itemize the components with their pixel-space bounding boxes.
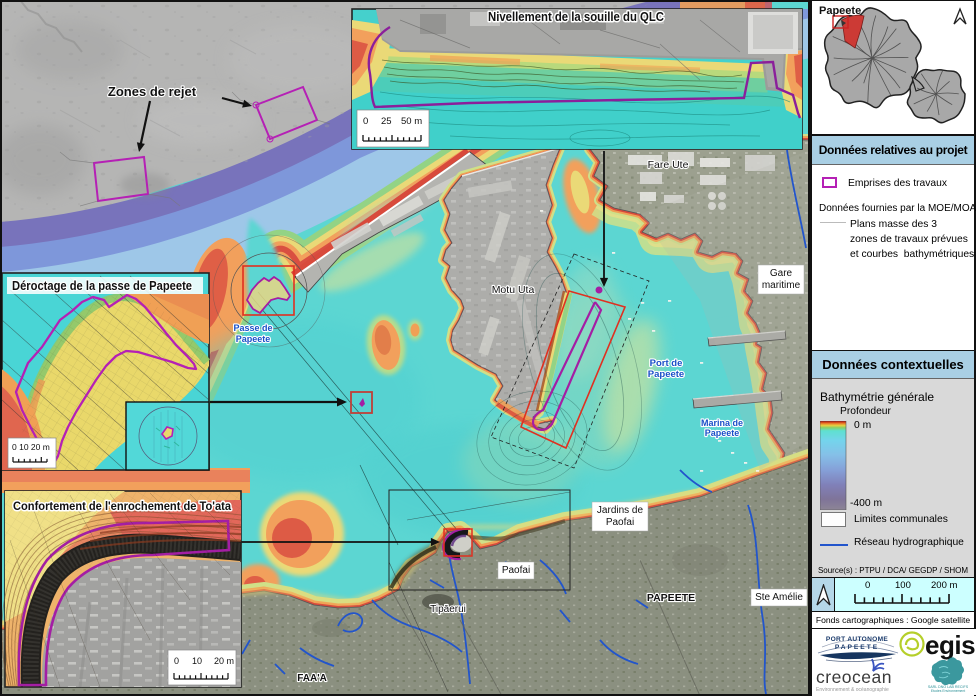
svg-text:0: 0 <box>363 116 368 127</box>
svg-text:25: 25 <box>381 116 392 127</box>
svg-text:PAPEETE: PAPEETE <box>835 644 879 651</box>
svg-text:Tipāerui: Tipāerui <box>430 604 466 615</box>
svg-text:20 m: 20 m <box>214 656 234 666</box>
svg-text:Port de: Port de <box>650 358 683 369</box>
svg-text:Papeete: Papeete <box>705 428 740 438</box>
svg-text:PORT AUTONOME: PORT AUTONOME <box>826 636 888 643</box>
svg-text:FAA'A: FAA'A <box>297 673 327 684</box>
svg-text:0: 0 <box>174 656 179 666</box>
svg-text:Confortement de l'enrochement: Confortement de l'enrochement de To'ata <box>13 499 231 513</box>
svg-text:Nivellement de la souille du Q: Nivellement de la souille du QLC <box>488 10 664 24</box>
svg-text:Paofai: Paofai <box>502 565 530 576</box>
svg-text:Environnement & océanographie: Environnement & océanographie <box>816 687 889 693</box>
svg-text:Papeete: Papeete <box>648 369 684 380</box>
svg-text:Déroctage de la passe de Papee: Déroctage de la passe de Papeete <box>12 279 192 293</box>
svg-text:Jardins de: Jardins de <box>597 505 644 516</box>
svg-text:50 m: 50 m <box>401 116 422 127</box>
svg-text:Gare: Gare <box>770 268 793 279</box>
svg-text:egis: egis <box>925 630 975 660</box>
svg-text:Marina de: Marina de <box>701 418 743 428</box>
svg-text:Papeete: Papeete <box>819 5 861 17</box>
svg-text:Zones de rejet: Zones de rejet <box>108 84 197 99</box>
svg-text:creocean: creocean <box>816 667 892 687</box>
svg-text:PAPEETE: PAPEETE <box>647 592 695 604</box>
svg-text:Passe de: Passe de <box>233 323 272 333</box>
svg-text:10: 10 <box>192 656 202 666</box>
svg-text:Etudes Environnement: Etudes Environnement <box>931 689 965 693</box>
svg-text:Ste Amélie: Ste Amélie <box>755 592 803 603</box>
svg-text:Paofai: Paofai <box>606 517 634 528</box>
svg-text:Papeete: Papeete <box>236 334 271 344</box>
svg-text:maritime: maritime <box>762 280 801 291</box>
svg-text:Fare Ute: Fare Ute <box>648 159 689 171</box>
svg-text:0 10 20 m: 0 10 20 m <box>12 442 50 452</box>
svg-text:Motu Uta: Motu Uta <box>492 284 535 296</box>
